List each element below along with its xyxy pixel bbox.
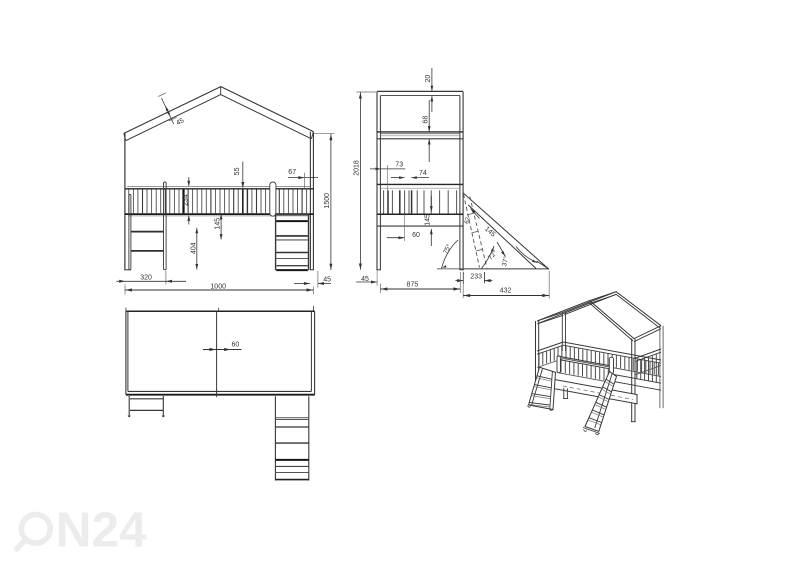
svg-text:233: 233 [470, 273, 482, 280]
svg-text:67: 67 [288, 169, 296, 176]
svg-text:68: 68 [422, 116, 429, 124]
svg-text:404: 404 [191, 242, 198, 254]
svg-text:73: 73 [395, 161, 403, 168]
svg-text:145: 145 [424, 214, 431, 226]
svg-text:145: 145 [214, 218, 221, 230]
svg-text:20: 20 [425, 75, 432, 83]
svg-text:432: 432 [500, 288, 512, 295]
svg-text:60: 60 [232, 342, 240, 349]
svg-text:60: 60 [412, 232, 420, 239]
svg-text:2018: 2018 [353, 160, 360, 176]
svg-text:875: 875 [407, 281, 419, 288]
svg-text:1500: 1500 [324, 193, 331, 209]
svg-text:N24: N24 [56, 502, 147, 557]
svg-text:1000: 1000 [210, 283, 226, 290]
svg-text:320: 320 [140, 275, 152, 282]
svg-text:74: 74 [419, 170, 427, 177]
svg-text:55: 55 [234, 167, 241, 175]
svg-text:45: 45 [323, 277, 331, 284]
svg-text:45: 45 [361, 276, 369, 283]
svg-text:234: 234 [182, 194, 189, 206]
